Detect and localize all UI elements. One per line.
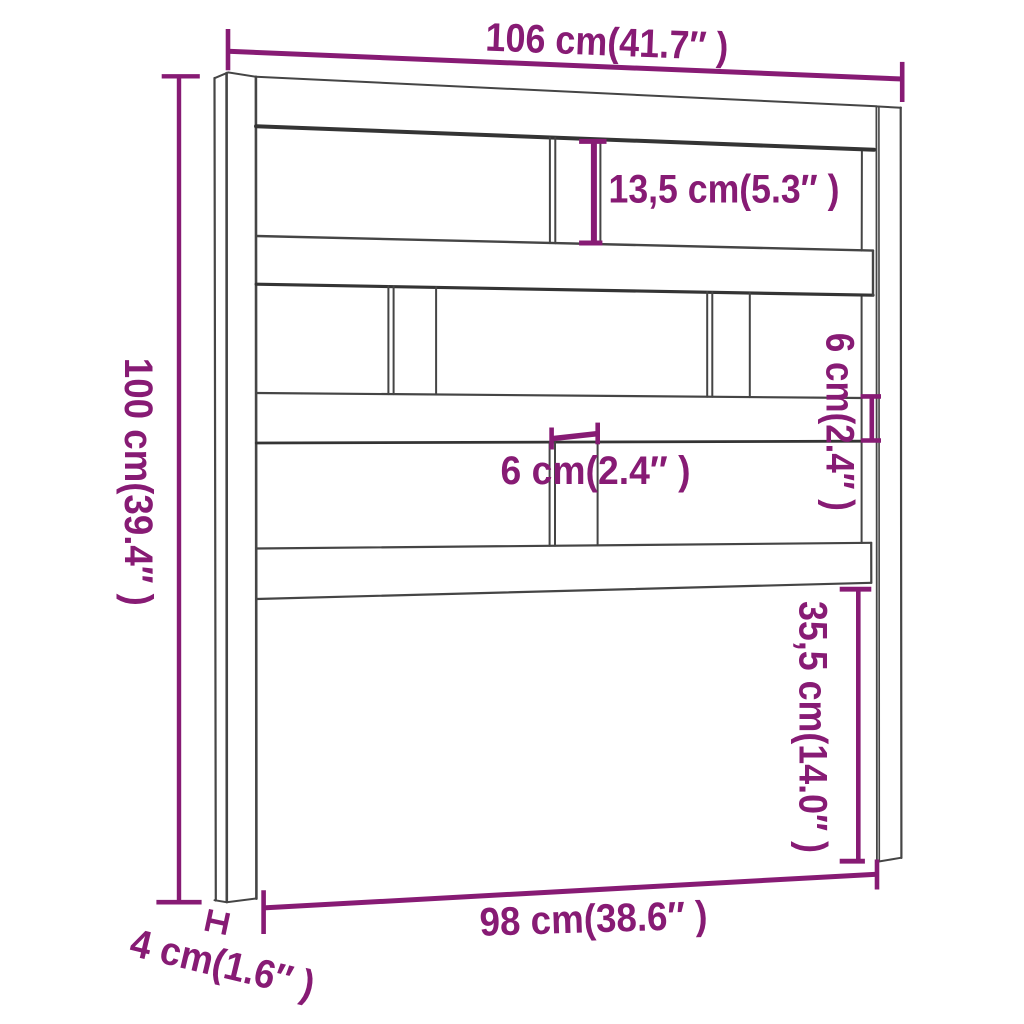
svg-text:6 cm(2.4″ ): 6 cm(2.4″ ) xyxy=(818,333,862,511)
svg-text:100 cm(39.4″ ): 100 cm(39.4″ ) xyxy=(116,358,160,606)
svg-text:35,5 cm(14.0″ ): 35,5 cm(14.0″ ) xyxy=(791,601,835,853)
svg-text:13,5 cm(5.3″ ): 13,5 cm(5.3″ ) xyxy=(609,168,840,212)
svg-text:6 cm(2.4″ ): 6 cm(2.4″ ) xyxy=(501,449,691,493)
svg-text:98 cm(38.6″ ): 98 cm(38.6″ ) xyxy=(479,894,708,945)
